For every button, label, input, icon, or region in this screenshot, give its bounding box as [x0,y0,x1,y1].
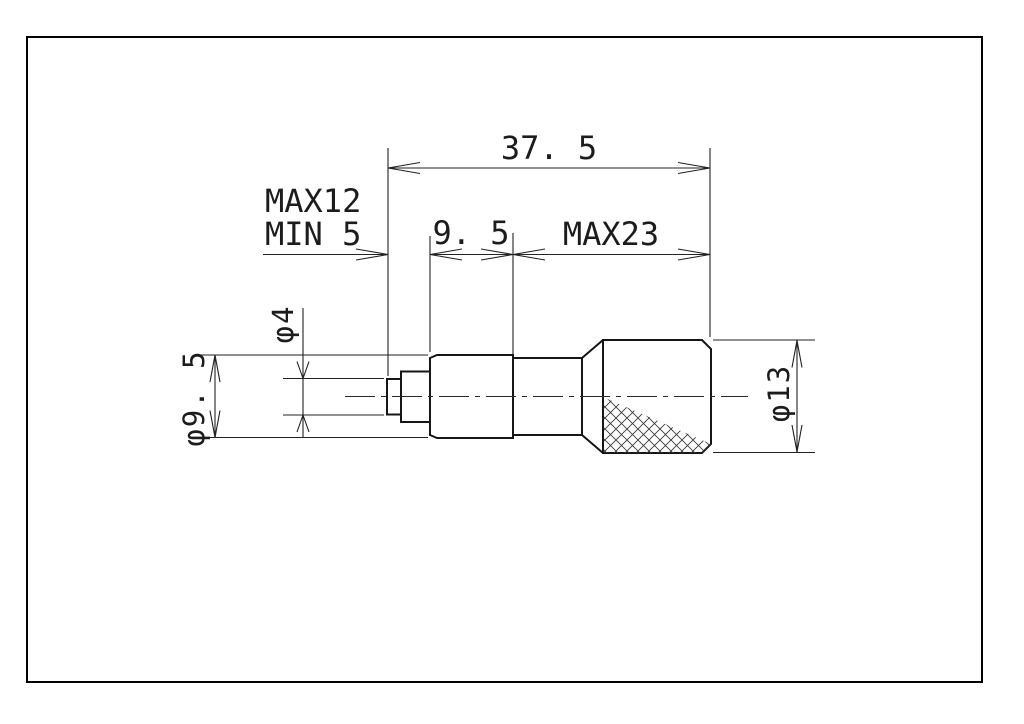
dim-label-tip-diameter: φ4 [266,305,300,344]
dim-label-overall-length: 37. 5 [501,129,597,167]
dim-label-thimble-diameter: φ13 [762,364,796,422]
dim-label-thimble-length: MAX23 [563,215,659,253]
dim-label-body-diameter: φ9. 5 [177,349,211,446]
dim-label-body-length: 9. 5 [432,214,509,252]
drawing-canvas: 37. 5 MAX12 MIN 5 9. 5 MAX23 φ4 φ9. 5 φ1… [0,0,1024,724]
drawing-page: 37. 5 MAX12 MIN 5 9. 5 MAX23 φ4 φ9. 5 φ1… [0,0,1024,724]
dim-label-travel-min: MIN 5 [265,215,361,253]
